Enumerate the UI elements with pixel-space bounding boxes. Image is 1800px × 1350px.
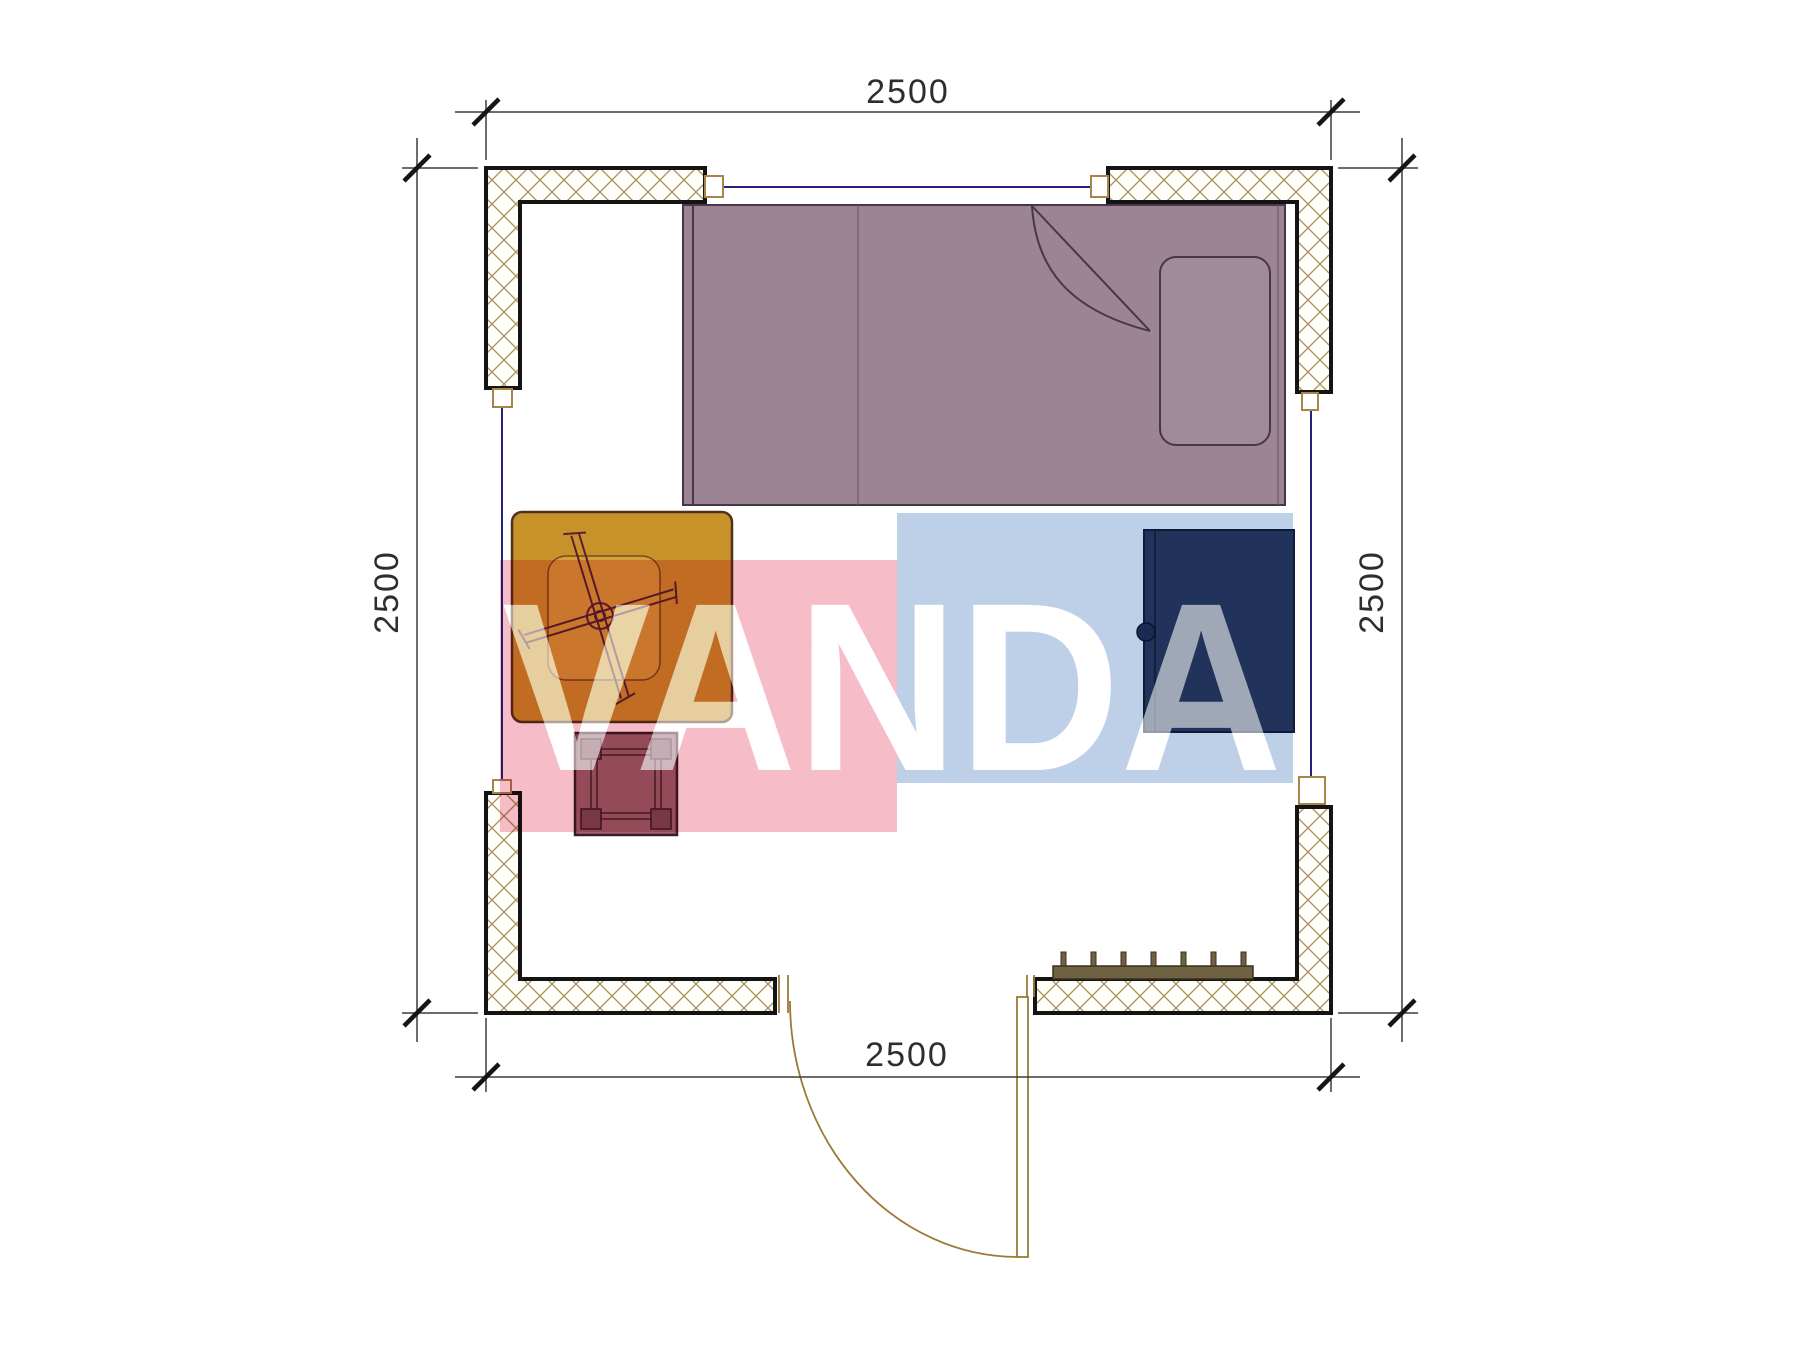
window-sill-icon [1091, 176, 1108, 197]
dimension-bottom: 2500 [455, 1018, 1360, 1092]
radiator [1053, 952, 1253, 979]
window-sill-icon [493, 389, 512, 407]
window-sill-icon [1302, 393, 1318, 410]
wall-bottom-right [1035, 807, 1331, 1013]
pillow [1160, 257, 1270, 445]
door-leaf [1017, 997, 1028, 1257]
dimension-right: 2500 [1338, 138, 1418, 1042]
dimension-top: 2500 [455, 73, 1360, 160]
dimension-label-bottom: 2500 [865, 1036, 949, 1074]
radiator-fin-icon [1091, 952, 1096, 966]
radiator-fin-icon [1211, 952, 1216, 966]
window-top [705, 176, 1108, 197]
radiator-fin-icon [1241, 952, 1246, 966]
window-sill-icon [1299, 777, 1325, 804]
radiator-fin-icon [1181, 952, 1186, 966]
bed [683, 205, 1285, 505]
dimension-left: 2500 [368, 138, 478, 1042]
window-right [1299, 393, 1325, 804]
dimension-label-top: 2500 [866, 73, 950, 111]
wall-top-left [486, 168, 705, 388]
floor-plan-drawing: VANDA [0, 0, 1800, 1350]
dimension-label-left: 2500 [368, 550, 406, 634]
door [779, 975, 1034, 1257]
dimension-label-right: 2500 [1353, 550, 1391, 634]
radiator-fin-icon [1151, 952, 1156, 966]
floor-plan-page: VANDA [0, 0, 1800, 1350]
radiator-fin-icon [1061, 952, 1066, 966]
window-sill-icon [705, 176, 723, 197]
radiator-bar [1053, 966, 1253, 979]
radiator-fin-icon [1121, 952, 1126, 966]
watermark-text: VANDA [502, 553, 1282, 821]
